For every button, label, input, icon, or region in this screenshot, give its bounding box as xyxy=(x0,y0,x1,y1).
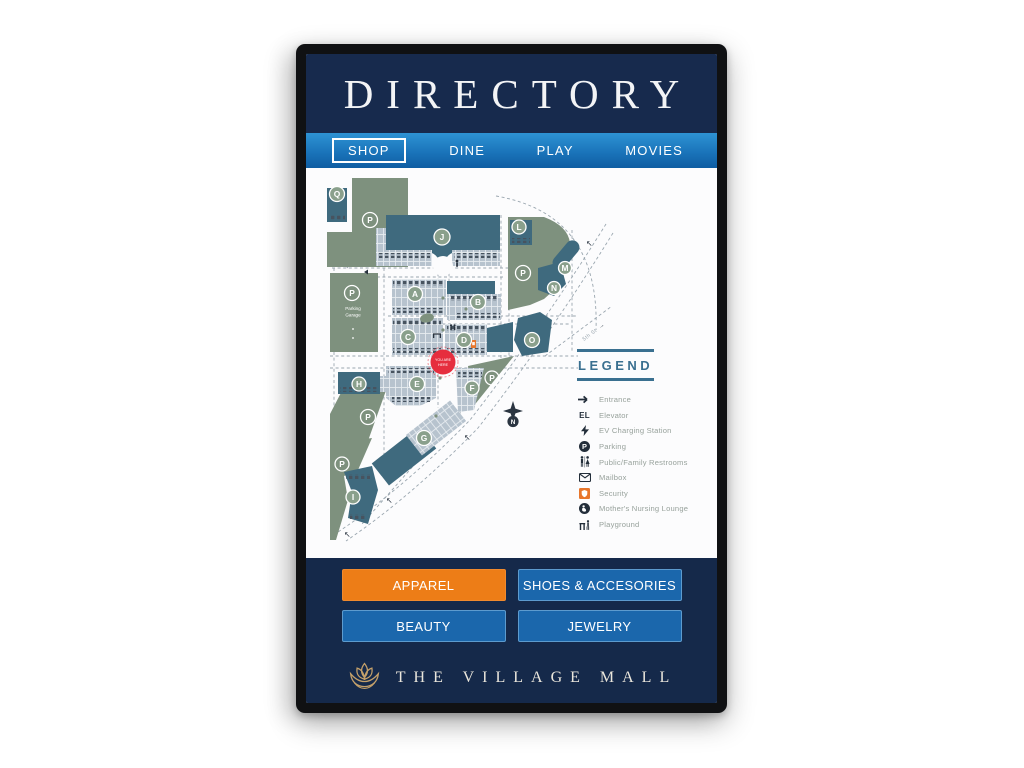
svg-text:P: P xyxy=(365,412,371,422)
svg-text:F: F xyxy=(469,383,474,393)
svg-text:G: G xyxy=(421,433,428,443)
category-button-shoes-accesories[interactable]: SHOES & ACCESORIES xyxy=(518,569,682,601)
svg-text:Parking: Parking xyxy=(345,306,361,311)
svg-text:↖: ↖ xyxy=(386,496,393,505)
compass-icon: N xyxy=(503,401,523,427)
page-background: DIRECTORY SHOP DINE PLAY MOVIES xyxy=(0,0,1024,768)
kiosk-bezel: DIRECTORY SHOP DINE PLAY MOVIES xyxy=(296,44,727,713)
playground-icon xyxy=(577,520,592,530)
legend-item-playground: Playground xyxy=(577,517,713,533)
svg-text:P: P xyxy=(582,442,587,451)
kiosk-screen: DIRECTORY SHOP DINE PLAY MOVIES xyxy=(306,54,717,703)
svg-text:A: A xyxy=(412,289,418,299)
category-button-apparel[interactable]: APPAREL xyxy=(342,569,506,601)
street-arrow-icon: → xyxy=(598,322,606,330)
svg-text:M: M xyxy=(562,263,569,273)
category-button-grid: APPAREL SHOES & ACCESORIES BEAUTY JEWELR… xyxy=(306,569,717,642)
legend-item-nursing: Mother's Nursing Lounge xyxy=(577,501,713,517)
svg-text:↖: ↖ xyxy=(344,530,351,539)
page-title: DIRECTORY xyxy=(331,70,693,118)
svg-text:YOU ARE: YOU ARE xyxy=(435,358,452,362)
svg-text:Garage: Garage xyxy=(345,313,361,318)
restrooms-icon xyxy=(577,456,592,468)
elevator-el-icon: EL xyxy=(577,411,592,420)
svg-text:H: H xyxy=(356,379,362,389)
legend-item-elevator: EL Elevator xyxy=(577,408,713,424)
svg-text:N: N xyxy=(511,419,516,426)
svg-text:HERE: HERE xyxy=(438,363,449,367)
svg-text:↖: ↖ xyxy=(464,433,471,442)
svg-text:5th St: 5th St xyxy=(582,328,599,343)
svg-text:N: N xyxy=(551,283,557,293)
parking-icon: P xyxy=(577,441,592,452)
svg-text:I: I xyxy=(352,492,354,502)
svg-text:Q: Q xyxy=(334,189,341,199)
svg-text:O: O xyxy=(529,335,536,345)
legend-title: LEGEND xyxy=(577,349,654,381)
security-icon xyxy=(577,488,592,499)
legend-item-mailbox: Mailbox xyxy=(577,470,713,486)
legend-item-ev-charging: EV Charging Station xyxy=(577,423,713,439)
lotus-logo-icon xyxy=(346,657,383,699)
mall-name: THE VILLAGE MALL xyxy=(396,669,677,687)
tab-shop[interactable]: SHOP xyxy=(332,138,406,163)
footer: APPAREL SHOES & ACCESORIES BEAUTY JEWELR… xyxy=(306,558,717,703)
svg-text:P: P xyxy=(489,373,495,383)
svg-text:D: D xyxy=(461,335,467,345)
legend-item-entrance: Entrance xyxy=(577,392,713,408)
entrance-arrow-icon xyxy=(577,395,592,404)
mall-map-area[interactable]: ↖ ↖ ↖ ↖ 5th St → xyxy=(306,168,717,558)
svg-text:J: J xyxy=(440,232,445,242)
legend-item-restrooms: Public/Family Restrooms xyxy=(577,454,713,470)
category-tabbar: SHOP DINE PLAY MOVIES xyxy=(306,133,717,168)
mailbox-icon xyxy=(577,473,592,482)
svg-text:E: E xyxy=(414,379,420,389)
category-button-jewelry[interactable]: JEWELRY xyxy=(518,610,682,642)
legend: LEGEND Entrance EL Elevator xyxy=(577,349,713,532)
legend-item-parking: P Parking xyxy=(577,439,713,455)
svg-text:P: P xyxy=(367,215,373,225)
svg-text:P: P xyxy=(520,268,526,278)
svg-text:P: P xyxy=(349,288,355,298)
svg-text:P: P xyxy=(339,459,345,469)
tab-play[interactable]: PLAY xyxy=(529,138,582,163)
category-button-beauty[interactable]: BEAUTY xyxy=(342,610,506,642)
header: DIRECTORY xyxy=(306,54,717,133)
ev-charging-icon xyxy=(577,425,592,436)
street-label: 5th St → xyxy=(582,322,606,342)
svg-text:C: C xyxy=(405,332,411,342)
map-shop-rows[interactable] xyxy=(376,228,501,455)
brand-row: THE VILLAGE MALL xyxy=(306,657,717,699)
svg-text:L: L xyxy=(516,222,521,232)
nursing-icon xyxy=(577,503,592,514)
svg-text:B: B xyxy=(475,297,481,307)
svg-text:↖: ↖ xyxy=(586,239,593,248)
legend-item-security: Security xyxy=(577,486,713,502)
tab-movies[interactable]: MOVIES xyxy=(617,138,691,163)
tab-dine[interactable]: DINE xyxy=(441,138,493,163)
